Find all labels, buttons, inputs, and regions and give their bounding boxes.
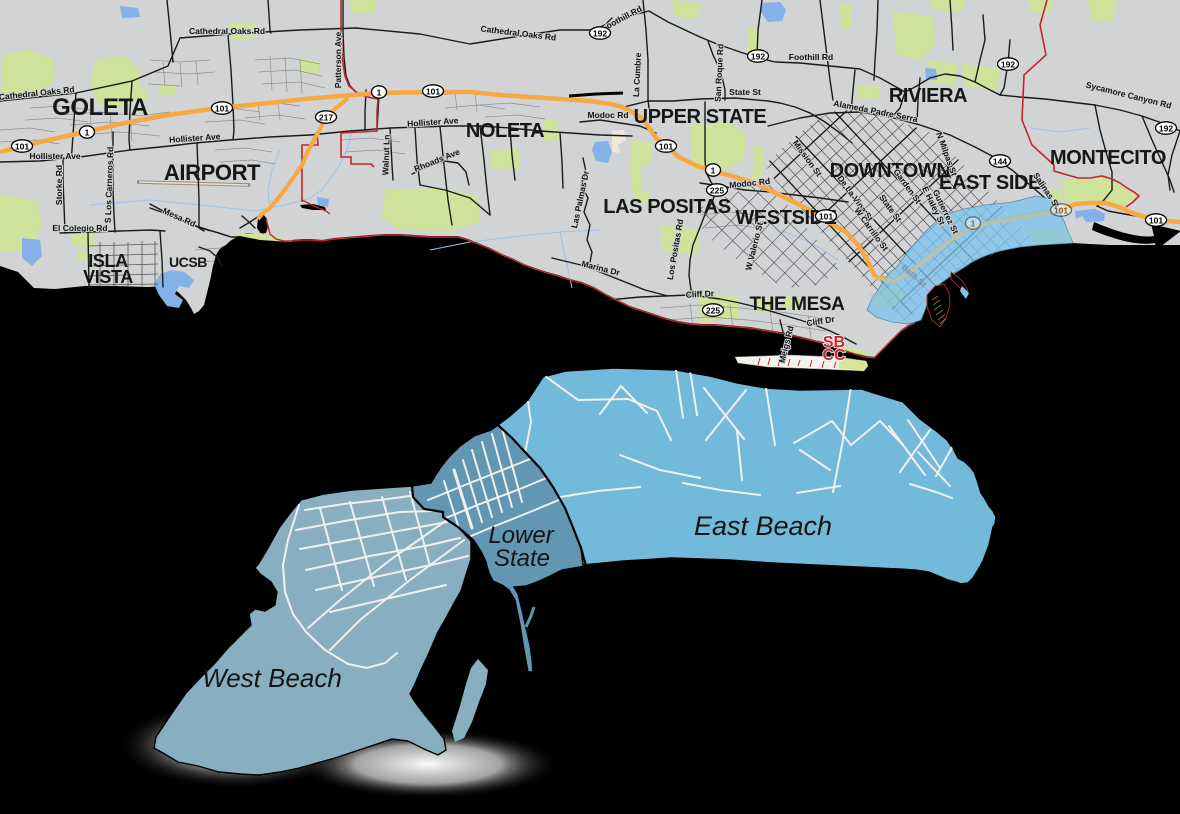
svg-text:AIRPORT: AIRPORT: [164, 160, 261, 185]
svg-text:101: 101: [426, 87, 440, 97]
svg-text:225: 225: [706, 306, 720, 316]
svg-text:192: 192: [751, 52, 765, 62]
svg-text:101: 101: [819, 212, 833, 222]
svg-text:NOLETA: NOLETA: [466, 120, 544, 142]
svg-text:UPPER STATE: UPPER STATE: [634, 106, 767, 128]
svg-text:CC: CC: [822, 347, 846, 364]
svg-text:144: 144: [993, 157, 1007, 167]
svg-text:THE MESA: THE MESA: [750, 294, 846, 315]
svg-text:192: 192: [1001, 60, 1015, 70]
svg-text:1: 1: [971, 219, 976, 229]
svg-text:1: 1: [377, 88, 382, 98]
svg-text:Cliff Dr: Cliff Dr: [685, 288, 715, 300]
svg-text:GOLETA: GOLETA: [52, 94, 148, 121]
svg-text:Storke Rd: Storke Rd: [54, 165, 64, 205]
svg-text:Patterson Ave: Patterson Ave: [333, 31, 343, 88]
svg-text:Walnut Ln: Walnut Ln: [380, 134, 391, 175]
svg-text:101: 101: [15, 142, 29, 152]
svg-text:West Beach: West Beach: [202, 663, 342, 693]
svg-text:MONTECITO: MONTECITO: [1050, 147, 1166, 169]
svg-text:El Colegio Rd: El Colegio Rd: [52, 223, 107, 233]
svg-text:225: 225: [710, 186, 724, 196]
svg-text:1: 1: [85, 128, 90, 138]
svg-text:LAS POSITAS: LAS POSITAS: [603, 196, 731, 218]
svg-text:101: 101: [659, 142, 673, 152]
svg-text:Foothill Rd: Foothill Rd: [789, 52, 833, 62]
svg-text:RIVIERA: RIVIERA: [889, 85, 967, 107]
svg-text:101: 101: [1149, 216, 1163, 226]
svg-text:State: State: [494, 545, 550, 572]
svg-text:VISTA: VISTA: [83, 267, 133, 287]
svg-text:217: 217: [319, 113, 333, 123]
svg-text:UCSB: UCSB: [169, 254, 207, 270]
svg-text:Modoc Rd: Modoc Rd: [587, 110, 628, 120]
svg-text:192: 192: [593, 29, 607, 39]
svg-text:Hollister Ave: Hollister Ave: [29, 151, 81, 161]
svg-text:101: 101: [1054, 206, 1068, 216]
svg-text:101: 101: [215, 104, 229, 114]
svg-text:State St: State St: [729, 87, 761, 97]
svg-text:192: 192: [1159, 124, 1173, 134]
svg-text:1: 1: [711, 166, 716, 176]
svg-text:Cathedral Oaks Rd: Cathedral Oaks Rd: [189, 26, 265, 36]
svg-text:East Beach: East Beach: [694, 511, 832, 541]
